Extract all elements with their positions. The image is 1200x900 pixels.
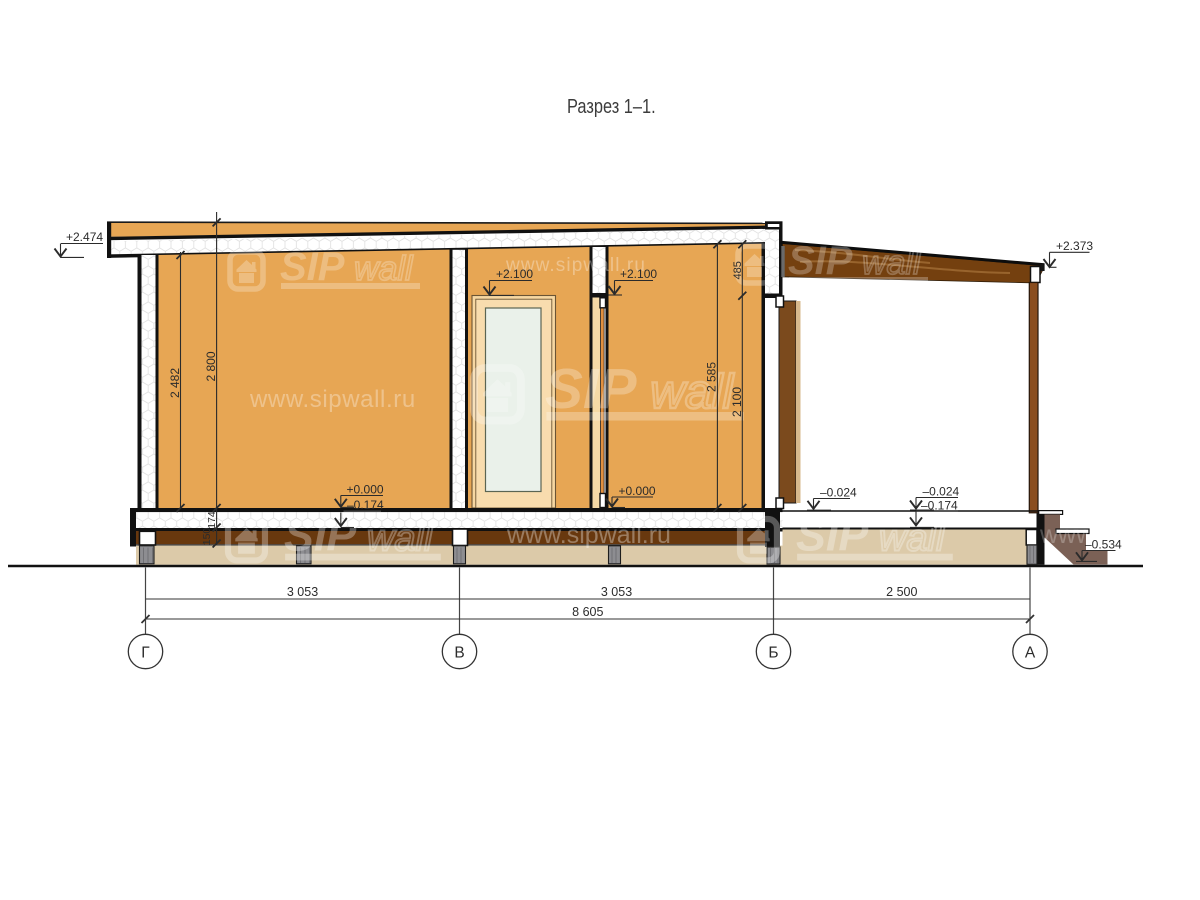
- svg-text:3 053: 3 053: [287, 585, 318, 599]
- svg-text:www.sipwall.ru: www.sipwall.ru: [506, 521, 671, 549]
- svg-text:–0.174: –0.174: [921, 499, 958, 513]
- svg-text:2 585: 2 585: [705, 362, 719, 392]
- svg-text:485: 485: [732, 261, 744, 279]
- svg-text:+0.000: +0.000: [347, 483, 384, 497]
- svg-text:2 800: 2 800: [204, 351, 218, 381]
- svg-text:–0.024: –0.024: [820, 486, 857, 500]
- svg-text:–0.174: –0.174: [347, 498, 384, 512]
- svg-text:В: В: [454, 645, 464, 662]
- svg-text:174: 174: [206, 511, 218, 529]
- svg-text:+2.100: +2.100: [496, 267, 533, 281]
- svg-text:+2.100: +2.100: [620, 267, 657, 281]
- svg-text:Б: Б: [768, 645, 778, 662]
- svg-text:–0.024: –0.024: [923, 485, 960, 499]
- svg-text:–0.534: –0.534: [1085, 538, 1122, 552]
- svg-text:2 100: 2 100: [730, 387, 744, 417]
- svg-text:Г: Г: [141, 645, 150, 662]
- svg-text:Разрез 1–1.: Разрез 1–1.: [567, 94, 656, 117]
- svg-text:8 605: 8 605: [572, 605, 603, 619]
- svg-text:А: А: [1025, 645, 1036, 662]
- svg-text:+0.000: +0.000: [619, 484, 656, 498]
- svg-text:+2.373: +2.373: [1056, 239, 1093, 253]
- svg-text:+2.474: +2.474: [66, 230, 103, 244]
- svg-text:www.sipwall.ru: www.sipwall.ru: [249, 386, 416, 413]
- svg-text:3 053: 3 053: [601, 585, 632, 599]
- svg-text:150: 150: [201, 528, 213, 546]
- svg-text:2 500: 2 500: [886, 585, 917, 599]
- svg-text:2 482: 2 482: [168, 368, 182, 398]
